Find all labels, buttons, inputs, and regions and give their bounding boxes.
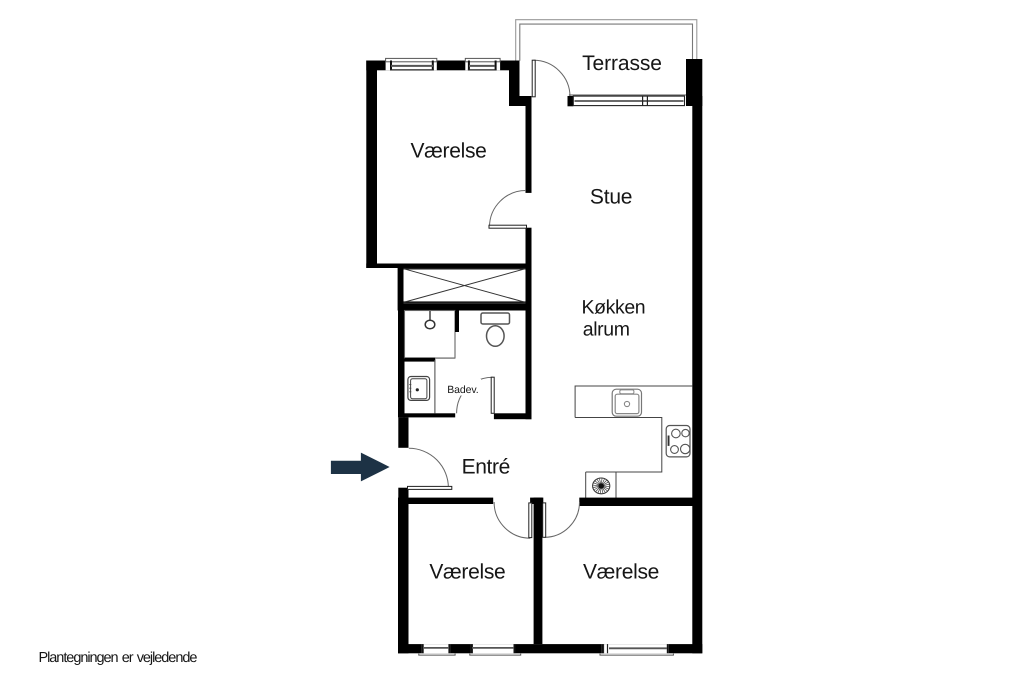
svg-text:Værelse: Værelse	[429, 561, 505, 584]
svg-text:alrum: alrum	[583, 319, 630, 341]
svg-text:Terrasse: Terrasse	[582, 52, 662, 75]
svg-text:Stue: Stue	[590, 186, 632, 209]
svg-text:Værelse: Værelse	[583, 561, 659, 584]
svg-text:Værelse: Værelse	[410, 139, 486, 162]
svg-text:Plantegningen er vejledende: Plantegningen er vejledende	[39, 650, 198, 666]
svg-text:Entré: Entré	[462, 455, 510, 478]
svg-text:Badev.: Badev.	[447, 384, 478, 396]
svg-text:Køkken: Køkken	[582, 297, 646, 319]
